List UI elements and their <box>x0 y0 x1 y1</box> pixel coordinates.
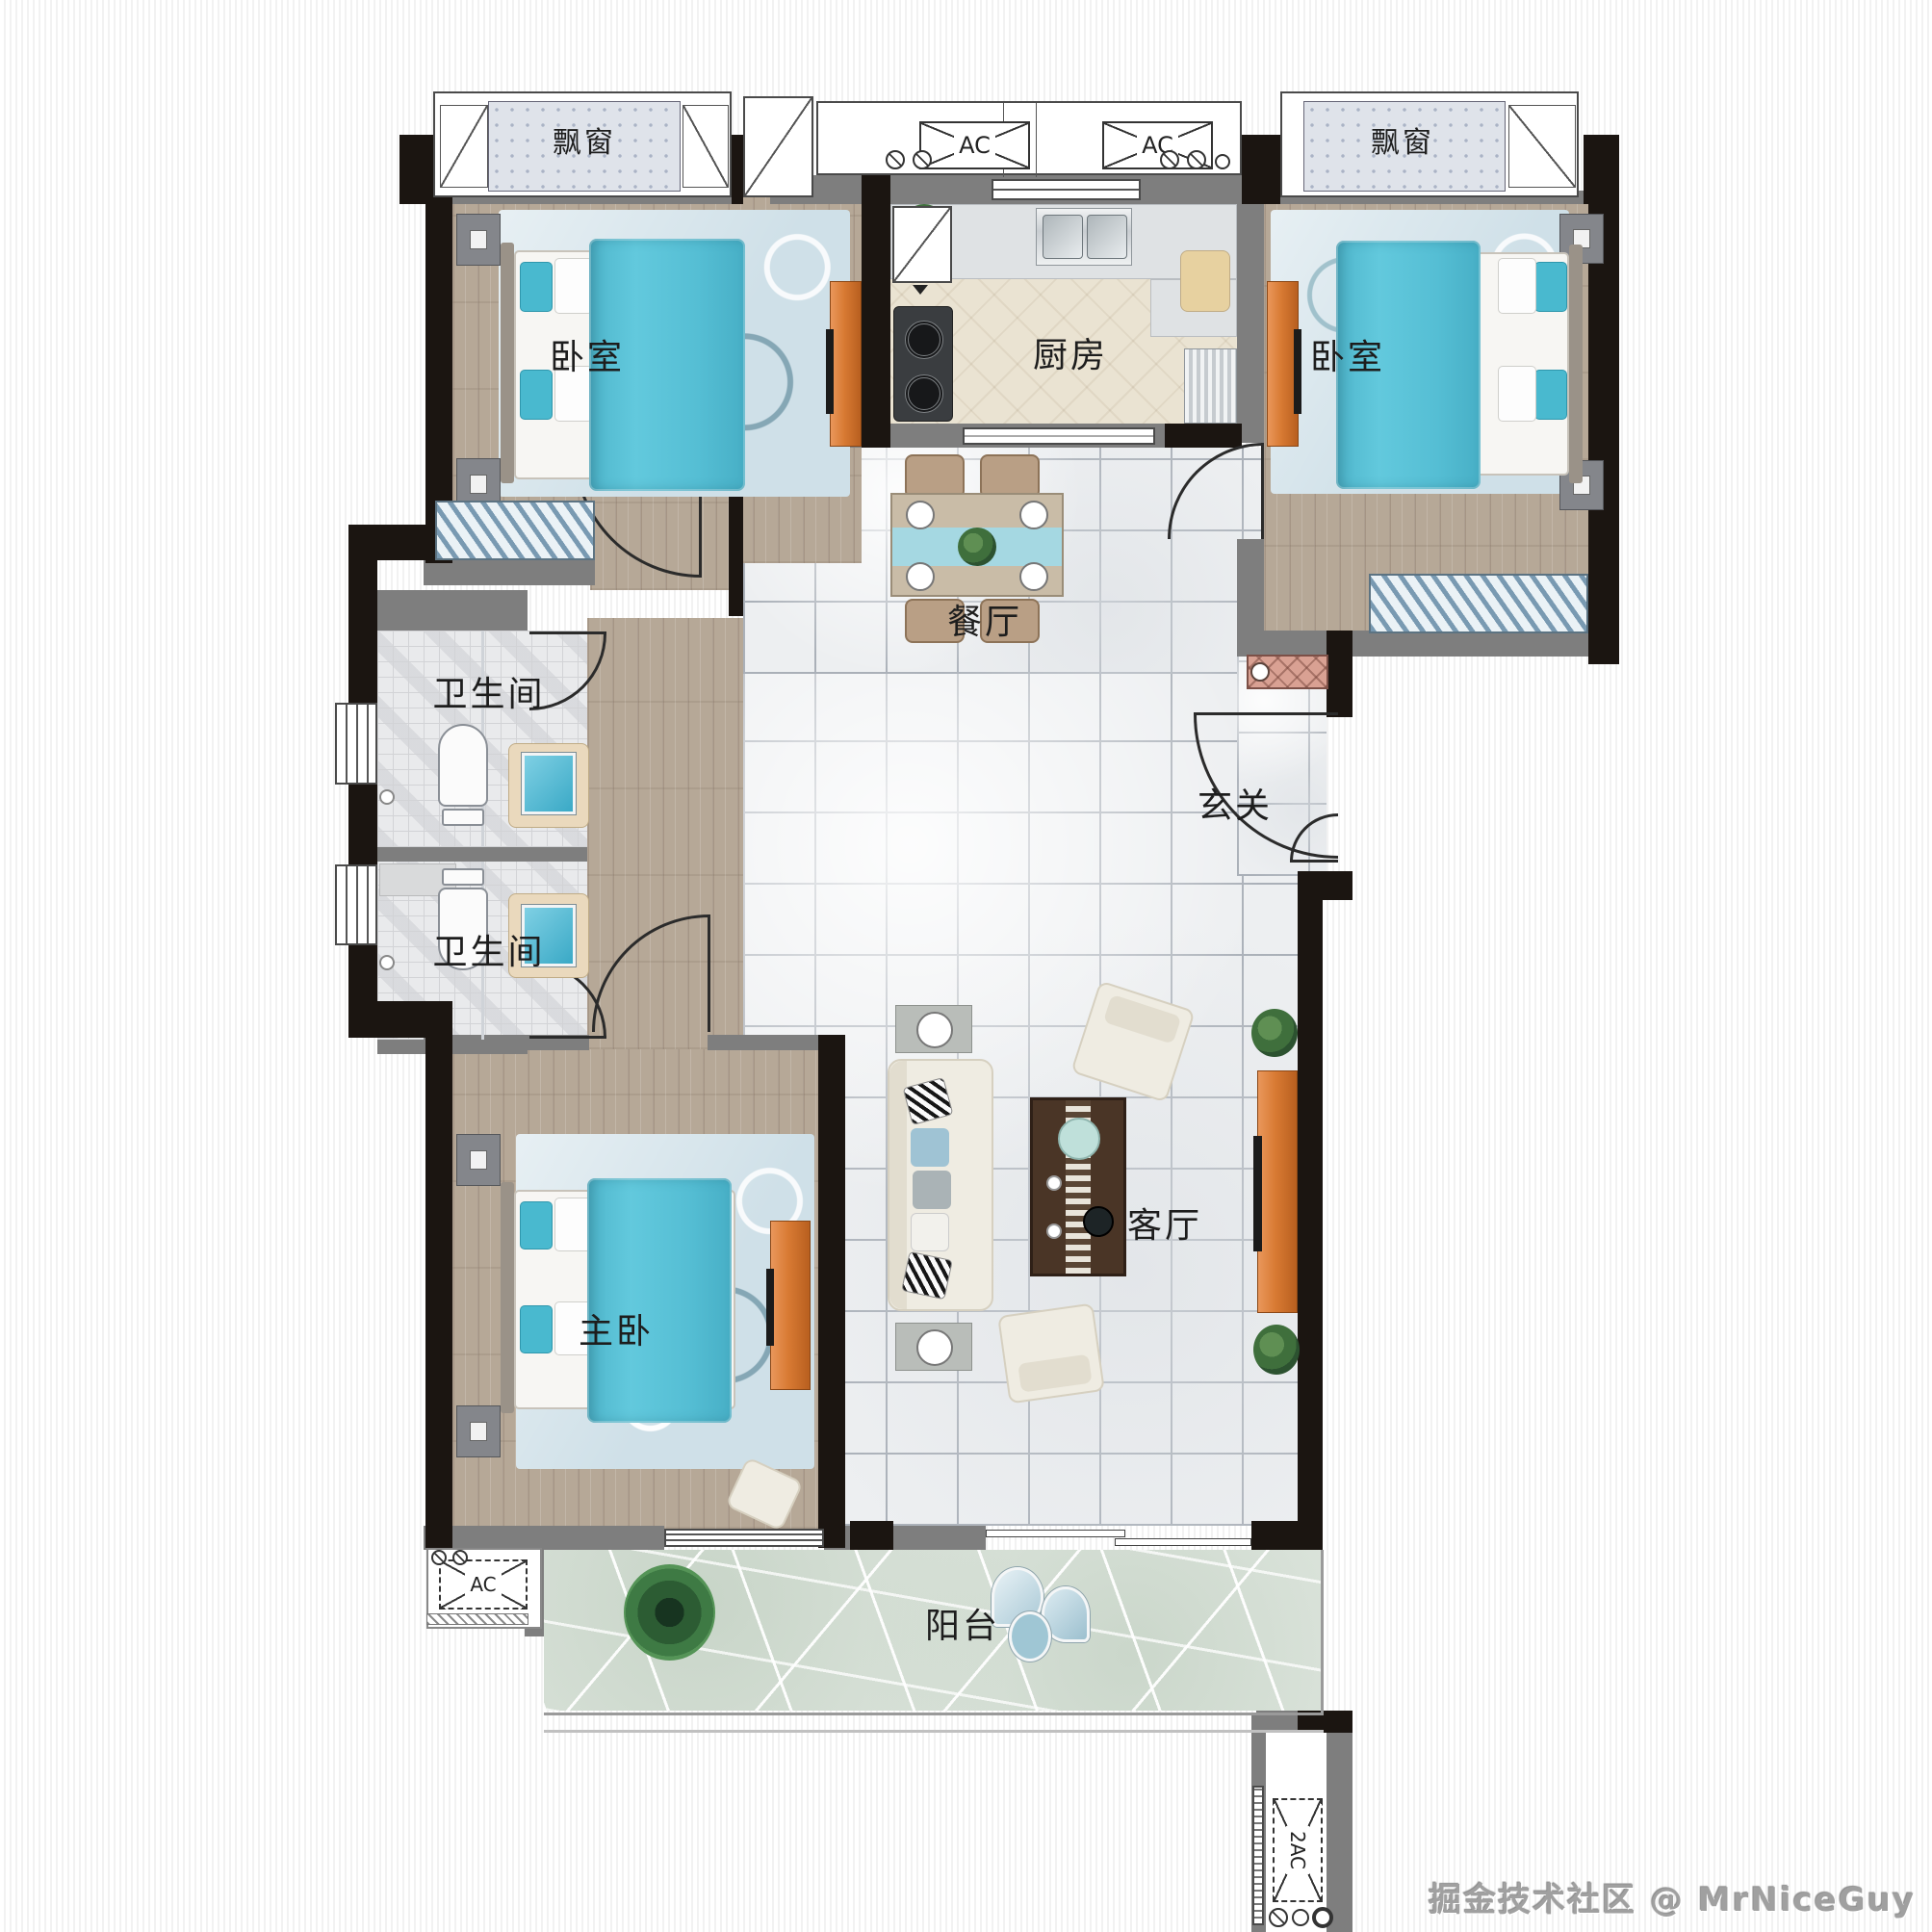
coffee-table <box>1030 1097 1126 1276</box>
fan-icon <box>452 1550 468 1565</box>
pillow <box>520 262 553 312</box>
nightstand-lamp <box>470 1422 487 1441</box>
window <box>743 96 813 197</box>
burner-icon <box>905 321 943 359</box>
shaft-ac-label: 2AC <box>1286 1826 1309 1874</box>
wall <box>399 135 433 204</box>
living-tv-cabinet <box>1257 1070 1298 1313</box>
wall <box>1298 871 1352 900</box>
plate-icon <box>1019 501 1048 529</box>
wall <box>1298 900 1323 1550</box>
nightstand <box>456 1134 501 1186</box>
burner-icon <box>905 374 943 413</box>
kitchen-door-leaf <box>892 206 952 283</box>
wall <box>1242 135 1280 204</box>
balcony-parapet <box>544 1713 1324 1715</box>
bath2-label: 卫生间 <box>393 932 585 974</box>
cup-icon <box>1046 1175 1062 1191</box>
wall <box>862 175 890 448</box>
bay-window-1: 飘窗 <box>433 91 732 197</box>
wall <box>424 560 595 585</box>
shaft-window-strip <box>1252 1786 1264 1925</box>
balcony-slider-panel <box>1115 1538 1251 1546</box>
wall <box>1264 631 1619 657</box>
bed-headboard <box>1569 245 1583 483</box>
tea-plate <box>1058 1118 1100 1160</box>
balcony-parapet-right <box>1321 1550 1324 1713</box>
master-label: 主卧 <box>549 1311 683 1353</box>
bath2-door-leaf <box>529 1036 606 1039</box>
pillow <box>1534 370 1567 420</box>
chair-cushion <box>1018 1354 1092 1393</box>
wall <box>850 1521 893 1550</box>
entry-door-leaf-small <box>1290 860 1338 863</box>
nightstand-lamp <box>470 230 487 249</box>
pillow <box>913 1171 951 1209</box>
sink-basin <box>1043 215 1083 259</box>
casement-window-icon <box>440 105 488 188</box>
table-flowers <box>958 528 996 566</box>
pillow <box>1498 258 1536 314</box>
fan-icon <box>886 150 905 169</box>
ac-sill <box>426 1613 528 1625</box>
nightstand-lamp <box>470 475 487 494</box>
casement-window-icon <box>1508 105 1576 188</box>
wall <box>1237 539 1264 657</box>
pillow <box>554 258 593 314</box>
kitchen-label: 厨房 <box>1003 335 1138 377</box>
fan-icon <box>913 150 932 169</box>
tv-icon <box>766 1269 774 1346</box>
wall <box>1165 424 1242 448</box>
pillow <box>520 1201 553 1249</box>
balcony-ac-label: AC <box>465 1573 501 1596</box>
bedroom2-door-leaf <box>1261 443 1264 539</box>
pillow <box>1534 262 1567 312</box>
plate-icon <box>906 562 935 591</box>
bath1-label: 卫生间 <box>393 674 585 716</box>
wall <box>1327 631 1352 717</box>
kitchen-fridge <box>1184 348 1237 424</box>
shower-head-icon <box>379 789 395 805</box>
casement-window-icon <box>683 105 729 188</box>
kitchen-window <box>992 179 1141 200</box>
wall <box>708 1035 818 1050</box>
tv-icon <box>1253 1136 1262 1251</box>
bed-headboard <box>501 1182 514 1413</box>
balcony-parapet-outer <box>544 1730 1324 1733</box>
wall <box>377 590 528 631</box>
pillow <box>520 1305 553 1353</box>
kitchen-sink <box>1036 208 1132 266</box>
dining-label: 餐厅 <box>917 602 1052 644</box>
fan-icon <box>431 1550 447 1565</box>
bedroom2-label: 卧室 <box>1280 337 1415 379</box>
lamp-icon <box>916 1329 953 1366</box>
master-tv-cabinet <box>770 1221 811 1390</box>
wall <box>377 847 587 862</box>
cup-icon <box>1046 1224 1062 1239</box>
wall <box>818 1035 845 1548</box>
bath1-door-leaf <box>529 631 606 634</box>
ac-left-label: AC <box>954 132 995 159</box>
vent-icon <box>1215 154 1230 169</box>
cutting-board <box>1180 250 1230 312</box>
lounge-chair <box>997 1302 1105 1404</box>
wall <box>1584 135 1619 204</box>
nightstand-lamp <box>470 1150 487 1170</box>
plate-icon <box>906 501 935 529</box>
bay1-label: 飘窗 <box>517 122 652 165</box>
wall <box>348 560 377 1038</box>
bath1-window <box>335 703 377 785</box>
plate-icon <box>1019 562 1048 591</box>
wall <box>425 1038 452 1548</box>
side-table <box>895 1005 972 1053</box>
balcony-plant <box>624 1564 715 1661</box>
bed-throw <box>587 1178 732 1423</box>
pillow <box>1498 366 1536 422</box>
floor-plan: 飘窗 AC AC 飘窗 <box>0 0 1932 1932</box>
balcony-slider-panel <box>986 1530 1125 1537</box>
toilet-tank <box>442 809 484 826</box>
wall <box>1251 1521 1307 1550</box>
dining-table <box>890 493 1064 597</box>
watermark: 掘金技术社区 @ MrNiceGuy <box>1280 1873 1916 1920</box>
living-label: 客厅 <box>1097 1205 1232 1248</box>
toilet <box>438 724 488 807</box>
wall <box>424 1526 664 1550</box>
wall <box>893 1526 986 1550</box>
bay-window-2: 飘窗 <box>1280 91 1579 197</box>
fan-icon <box>1187 150 1206 169</box>
kitchen-pass <box>963 427 1155 445</box>
plant <box>1251 1009 1298 1057</box>
bay2-label: 飘窗 <box>1335 122 1470 165</box>
lamp-icon <box>916 1012 953 1048</box>
fan-icon <box>1160 150 1179 169</box>
side-table <box>895 1323 972 1371</box>
nightstand <box>456 214 501 266</box>
entry-label: 玄关 <box>1168 786 1302 828</box>
kitchen-stove <box>893 306 953 422</box>
bowl-icon <box>1250 662 1270 682</box>
bed-headboard <box>501 243 514 483</box>
bedroom1-tv-cabinet <box>830 281 862 447</box>
plant <box>1253 1325 1300 1375</box>
nightstand <box>456 1405 501 1457</box>
bedroom1-wardrobe <box>435 501 595 560</box>
wall <box>1588 204 1619 664</box>
bedroom2-wardrobe <box>1369 574 1588 633</box>
wall <box>348 1001 452 1038</box>
ac-unit-left: AC <box>919 121 1030 169</box>
balcony-label: 阳台 <box>900 1606 1025 1648</box>
wall <box>732 135 743 204</box>
bath2-window <box>335 864 377 945</box>
pillow <box>911 1213 949 1251</box>
sink-basin <box>1087 215 1127 259</box>
bedroom1-label: 卧室 <box>520 337 655 379</box>
pillow <box>911 1128 949 1167</box>
entry-door-leaf <box>1194 712 1338 715</box>
master-balcony-window <box>664 1529 824 1547</box>
tv-icon <box>826 329 834 414</box>
shoe-cabinet <box>1247 655 1328 689</box>
door-triangle-icon <box>913 285 928 295</box>
master-door-leaf <box>708 914 710 1032</box>
balcony-ac-unit: AC <box>439 1559 528 1610</box>
bath1-sink <box>522 753 576 814</box>
wall <box>1237 204 1264 443</box>
toilet-tank <box>442 868 484 886</box>
